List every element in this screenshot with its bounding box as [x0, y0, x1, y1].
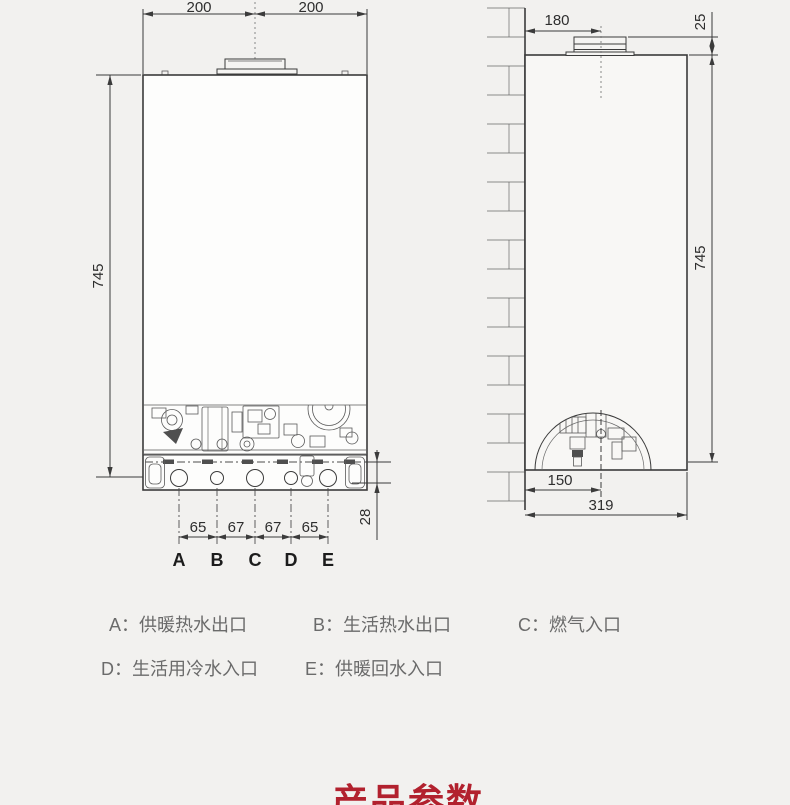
- port-label-c: C: [249, 550, 262, 570]
- front-flue-collar: [162, 59, 348, 75]
- wall-section: [487, 8, 525, 510]
- dim-200-left: 200: [186, 0, 211, 16]
- port-label-a: A: [173, 550, 186, 570]
- boiler-dimension-page: 200 200 745: [0, 0, 790, 805]
- legend-item-e: E：供暖回水入口: [305, 655, 443, 681]
- dim-319: 319: [588, 497, 613, 514]
- front-cabinet: [143, 75, 367, 490]
- legend-item-d: D：生活用冷水入口: [101, 655, 258, 681]
- dim-67-cd: 67: [265, 519, 282, 536]
- side-view: 180 25 745 150 319: [487, 8, 718, 520]
- port-label-e: E: [322, 550, 334, 570]
- side-180-dimension: 180: [525, 12, 601, 34]
- dim-745-side: 745: [692, 245, 709, 270]
- side-cabinet: [525, 55, 687, 470]
- dim-150: 150: [547, 472, 572, 489]
- dim-65-de: 65: [302, 519, 319, 536]
- dim-745-front: 745: [90, 263, 107, 288]
- dim-28: 28: [357, 509, 374, 526]
- side-150-dimension: 150: [525, 472, 601, 493]
- dim-25: 25: [692, 14, 709, 31]
- front-view: 200 200 745: [90, 0, 391, 570]
- legend-item-c: C：燃气入口: [518, 611, 621, 637]
- legend-item-a: A：供暖热水出口: [109, 611, 247, 637]
- dim-180: 180: [544, 12, 569, 29]
- dimension-drawing: 200 200 745: [0, 0, 790, 585]
- front-port-dimensions: 65 67 67 65 A B C D E: [173, 488, 335, 570]
- legend-item-b: B：生活热水出口: [313, 611, 451, 637]
- port-label-b: B: [211, 550, 224, 570]
- side-flue-collar: [566, 37, 634, 56]
- port-label-d: D: [285, 550, 298, 570]
- dim-67-bc: 67: [228, 519, 245, 536]
- dim-65-ab: 65: [190, 519, 207, 536]
- section-title: 产品参数: [0, 780, 790, 805]
- dim-200-right: 200: [298, 0, 323, 16]
